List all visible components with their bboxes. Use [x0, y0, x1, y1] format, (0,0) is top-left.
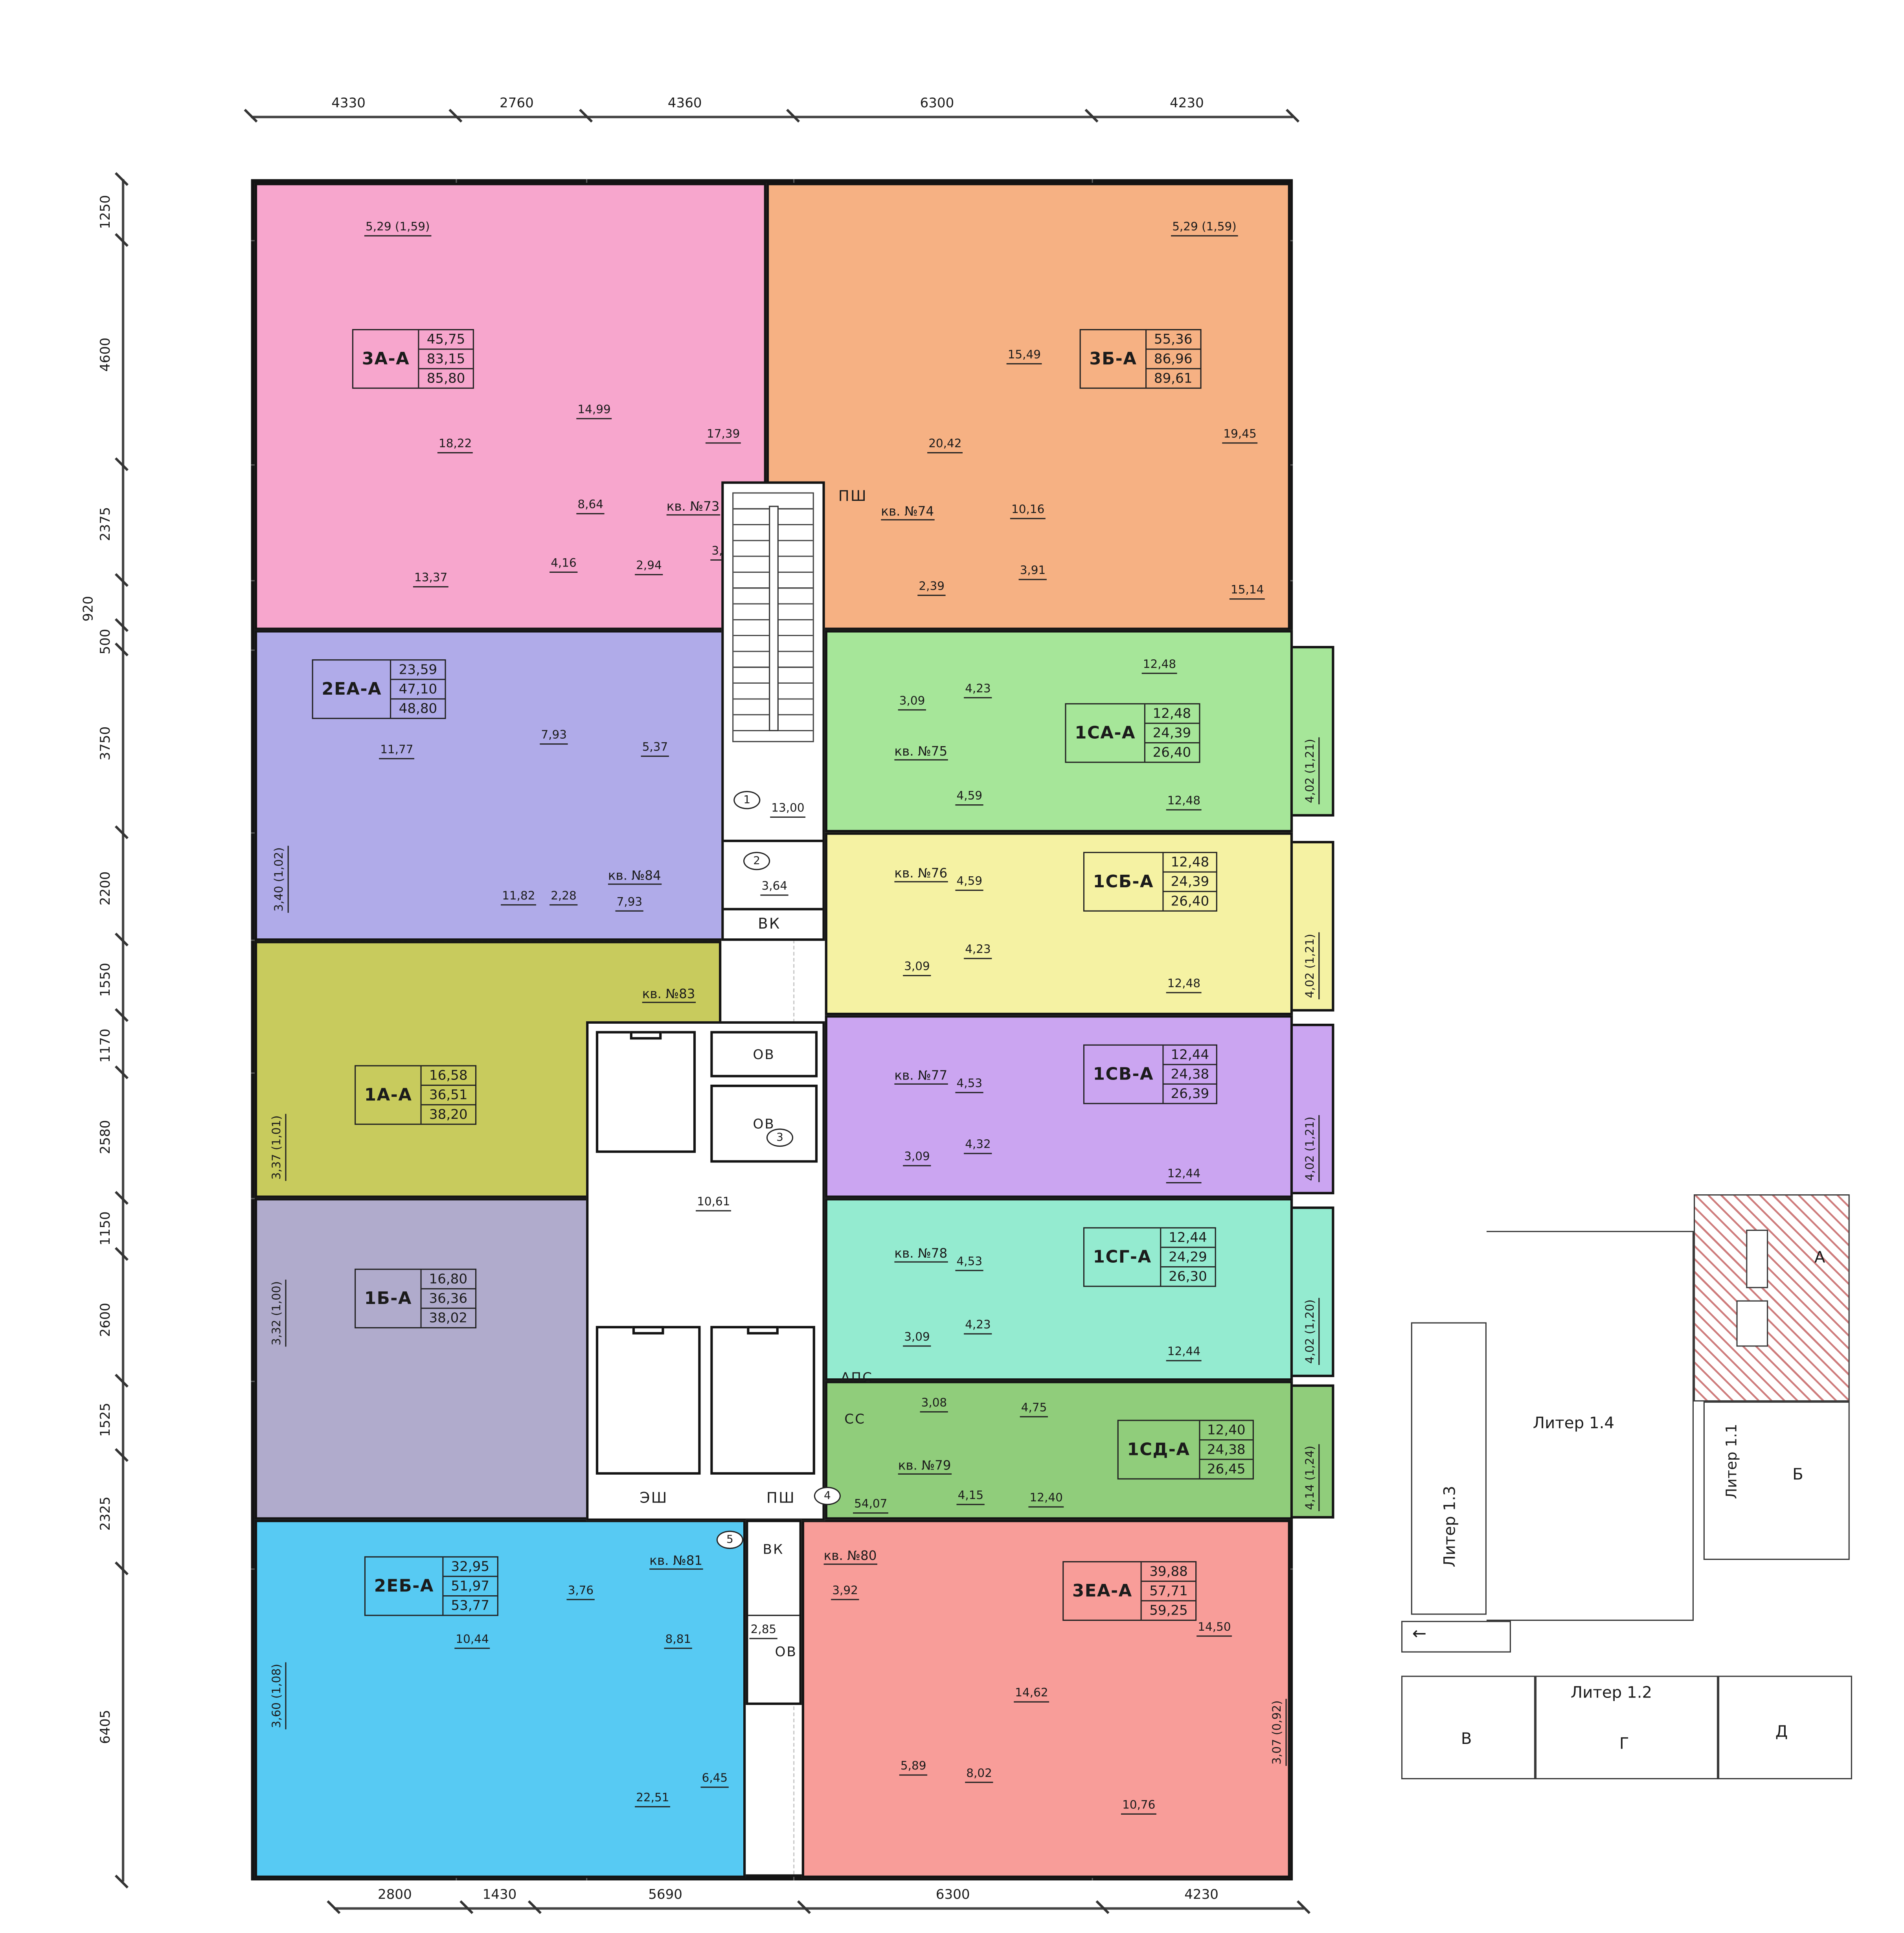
room-area: 3,09	[903, 1152, 931, 1166]
room-area: 14,62	[1014, 1688, 1049, 1703]
unit-number: кв. №78	[894, 1247, 947, 1262]
label-ss: СС	[844, 1411, 866, 1427]
site-plan-inset: ↑ Литер 1.3 Литер 1.4 А Б Литер 1.1 ← В …	[1377, 1194, 1858, 1810]
area-total: 47,10	[391, 679, 445, 699]
room-area: 15,14	[1230, 585, 1265, 600]
room-area: 7,93	[616, 897, 644, 912]
dim-bottom-5: 4230	[1184, 1887, 1218, 1902]
balcony-1sb: 4,02 (1,21)	[1293, 841, 1334, 1012]
site-block-a-core	[1746, 1230, 1768, 1288]
wall	[724, 908, 822, 910]
dim-bottom-3: 5690	[648, 1887, 682, 1902]
area-total: 24,38	[1163, 1064, 1217, 1083]
room-area: 12,48	[1166, 796, 1202, 810]
dim-left-5: 500	[97, 629, 113, 655]
apartment-tag: 1СБ-А 12,4824,3926,40	[1083, 852, 1218, 912]
room-area: 2,28	[550, 891, 578, 905]
stair-rail	[768, 506, 778, 732]
apartment-code: 1СД-А	[1119, 1421, 1198, 1479]
area-total: 24,29	[1162, 1247, 1215, 1266]
dim-left-9: 1170	[97, 1028, 113, 1063]
shaft-label-psh: ПШ	[766, 1489, 796, 1506]
site-liter-1-4: Литер 1.4	[1487, 1231, 1694, 1621]
area-total: 24,38	[1200, 1439, 1253, 1459]
room-area: 3,37 (1,01)	[272, 1114, 286, 1181]
room-number-badge: 4	[814, 1487, 841, 1505]
unit-number: кв. №73	[667, 500, 720, 515]
elevator-left	[596, 1326, 701, 1475]
area-living: 12,48	[1163, 853, 1217, 872]
room-area: 4,32	[964, 1140, 992, 1154]
dim-left-8: 1550	[97, 963, 113, 997]
floor-plan-sheet: 4330 2760 4360 6300 4230 1250 4600 2375 …	[0, 0, 1903, 1933]
room-number-badge: 3	[766, 1129, 793, 1147]
site-label-liter-1-1: Литер 1.1	[1723, 1424, 1740, 1499]
apartment-code: 3Б-А	[1081, 330, 1145, 388]
apartment-tag: 2ЕБ-А 32,9551,9753,77	[364, 1556, 498, 1616]
apartment-code: 1СБ-А	[1084, 853, 1162, 910]
room-area: 2,85	[750, 1624, 778, 1639]
apartment-tag: 1СВ-А 12,4424,3826,39	[1083, 1045, 1218, 1104]
site-label: А	[1814, 1249, 1825, 1268]
room-area: 10,61	[696, 1197, 731, 1211]
site-label: Литер 1.4	[1533, 1415, 1614, 1433]
room-area: 3,60 (1,08)	[272, 1663, 286, 1729]
room-area: 4,75	[1020, 1403, 1048, 1417]
area-full: 89,61	[1147, 368, 1200, 388]
room-area: 20,42	[927, 439, 963, 453]
dim-top-5: 4230	[1170, 95, 1204, 111]
room-area: 5,89	[899, 1761, 928, 1776]
balcony-1sa: 4,02 (1,21)	[1293, 646, 1334, 817]
apartment-code: 1СА-А	[1066, 704, 1144, 762]
dim-left-1: 1250	[97, 195, 113, 229]
elevator-door	[630, 1031, 662, 1040]
area-living: 12,40	[1200, 1421, 1253, 1440]
room-area: 5,37	[641, 742, 669, 757]
area-full: 48,80	[391, 698, 445, 718]
balcony-area: 4,02 (1,21)	[1305, 1115, 1320, 1182]
room-area: 8,81	[664, 1634, 693, 1649]
room-area: 19,45	[1222, 429, 1258, 443]
apartment-tag: 1А-А 16,5836,5138,20	[355, 1065, 476, 1125]
room-area: 12,48	[1166, 978, 1202, 993]
room-area: 11,82	[501, 891, 537, 905]
unit-number: кв. №74	[881, 504, 934, 520]
dim-left-7: 2200	[97, 872, 113, 906]
room-area: 2,39	[917, 581, 946, 596]
staircase	[732, 492, 814, 742]
area-full: 85,80	[419, 368, 472, 388]
apartment-tag: 3Б-А 55,3686,9689,61	[1080, 329, 1201, 389]
apartment-3a-a: 3А-А 45,7583,1585,80 5,29 (1,59) 18,22 1…	[255, 183, 766, 630]
apartment-3b-a: 3Б-А 55,3686,9689,61 5,29 (1,59) 15,49 2…	[766, 183, 1290, 630]
balcony-1sd: 4,14 (1,24)	[1293, 1385, 1334, 1519]
area-living: 16,58	[422, 1067, 475, 1085]
area-total: 24,39	[1145, 723, 1198, 742]
room-area: 13,00	[770, 803, 806, 818]
area-living: 45,75	[419, 330, 472, 349]
area-living: 39,88	[1142, 1562, 1195, 1581]
room-area: 5,29 (1,59)	[1171, 222, 1238, 236]
area-living: 55,36	[1147, 330, 1200, 349]
unit-number: кв. №80	[824, 1549, 877, 1565]
site-label-liter-1-2: Литер 1.2	[1571, 1684, 1652, 1703]
room-area: 8,02	[965, 1768, 993, 1783]
unit-number: кв. №77	[894, 1069, 947, 1085]
room-area: 3,09	[903, 1332, 931, 1346]
room-area: 3,76	[567, 1585, 595, 1600]
dim-left-6: 3750	[97, 726, 113, 761]
dim-line-top	[251, 116, 1293, 118]
arrow-left-icon: ←	[1412, 1624, 1426, 1644]
shaft-ov-2: ОВ	[710, 1085, 818, 1162]
site-entrance-block: ←	[1401, 1621, 1511, 1653]
dim-top-3: 4360	[668, 95, 702, 111]
apartment-code: 3А-А	[353, 330, 418, 388]
unit-number: кв. №75	[894, 745, 947, 760]
room-area: 3,64	[760, 881, 788, 896]
dim-left-12: 2600	[97, 1303, 113, 1337]
room-area: 5,29 (1,59)	[364, 222, 431, 236]
site-liter-1-3: Литер 1.3	[1411, 1322, 1487, 1615]
balcony-area: 4,14 (1,24)	[1305, 1444, 1320, 1511]
apartment-tag: 1СА-А 12,4824,3926,40	[1065, 703, 1200, 763]
elevator-small	[596, 1031, 696, 1153]
shaft-label-esh: ЭШ	[640, 1489, 668, 1506]
unit-number: кв. №76	[894, 866, 947, 882]
shaft-label-ov3: ОВ	[775, 1644, 797, 1660]
area-total: 83,15	[419, 349, 472, 368]
room-area: 13,37	[413, 573, 449, 587]
area-full: 26,45	[1200, 1459, 1253, 1479]
room-number-badge: 1	[733, 791, 760, 809]
room-area: 4,23	[964, 684, 992, 698]
area-living: 12,44	[1162, 1229, 1215, 1247]
room-area: 10,16	[1010, 504, 1046, 519]
room-area: 3,07 (0,92)	[1272, 1699, 1286, 1766]
room-area: 4,53	[955, 1079, 983, 1093]
room-area: 8,64	[576, 500, 605, 514]
dim-left-13: 1525	[97, 1403, 113, 1437]
elevator-door	[747, 1326, 779, 1335]
site-label: Д	[1775, 1723, 1788, 1742]
shaft-label-vk2: ВК	[763, 1542, 784, 1558]
shaft-label-vk: ВК	[758, 915, 781, 932]
balcony-1sg: 4,02 (1,20)	[1293, 1207, 1334, 1377]
room-area: 12,44	[1166, 1169, 1202, 1183]
dim-left-3: 2375	[97, 507, 113, 541]
dim-left-15: 6405	[97, 1710, 113, 1744]
room-area: 3,92	[831, 1585, 859, 1600]
service-shaft: ВК 2,85 ОВ	[746, 1520, 802, 1705]
room-area: 2,94	[635, 561, 663, 575]
apartment-code: 2ЕБ-А	[366, 1558, 443, 1615]
unit-number: кв. №79	[898, 1459, 951, 1475]
label-aps: АПС	[841, 1370, 873, 1385]
balcony-area: 4,02 (1,21)	[1305, 738, 1320, 804]
dim-bottom-4: 6300	[936, 1887, 970, 1902]
room-area: 14,99	[576, 405, 612, 419]
site-label: Г	[1619, 1735, 1629, 1754]
dim-left-14: 2325	[97, 1497, 113, 1531]
room-area: 4,15	[957, 1490, 985, 1505]
area-full: 26,30	[1162, 1266, 1215, 1286]
site-label: Литер 1.3	[1441, 1486, 1460, 1567]
elevator-door	[632, 1326, 664, 1335]
area-full: 26,40	[1145, 742, 1198, 762]
apartment-tag: 1СД-А 12,4024,3826,45	[1117, 1420, 1254, 1480]
unit-number: кв. №83	[642, 987, 695, 1003]
room-area: 6,45	[701, 1773, 729, 1788]
room-area: 3,32 (1,00)	[272, 1280, 286, 1347]
room-area: 17,39	[706, 429, 741, 443]
area-total: 86,96	[1147, 349, 1200, 368]
area-total: 51,97	[444, 1576, 497, 1595]
site-block-d: Д	[1718, 1676, 1852, 1780]
apartment-code: 1СГ-А	[1084, 1229, 1160, 1286]
area-total: 36,36	[422, 1288, 475, 1308]
area-full: 59,25	[1142, 1600, 1195, 1620]
site-label: Б	[1792, 1466, 1803, 1484]
apartment-tag: 1СГ-А 12,4424,2926,30	[1083, 1227, 1216, 1287]
apartment-code: 1СВ-А	[1084, 1046, 1162, 1103]
room-area: 14,50	[1196, 1622, 1232, 1637]
dim-line-bottom	[334, 1907, 1304, 1909]
room-area: 3,08	[920, 1398, 948, 1413]
unit-number: кв. №81	[649, 1554, 702, 1570]
area-living: 23,59	[391, 660, 445, 679]
shaft-ov-1: ОВ	[710, 1031, 818, 1078]
unit-number: кв. №84	[608, 869, 661, 885]
balcony-1sv: 4,02 (1,21)	[1293, 1024, 1334, 1194]
room-area: 4,23	[964, 1320, 992, 1334]
room-area: 3,09	[898, 696, 926, 710]
area-full: 26,40	[1163, 891, 1217, 910]
apartment-code: 2ЕА-А	[313, 660, 390, 718]
room-area: 12,40	[1028, 1493, 1064, 1508]
room-area: 54,07	[853, 1499, 889, 1514]
stair-core: 1 13,00 2 3,64 ВК	[721, 482, 825, 941]
apartment-code: 1Б-А	[356, 1270, 420, 1327]
dim-top-2: 2760	[500, 95, 534, 111]
room-area: 10,76	[1121, 1800, 1157, 1815]
apartment-tag: 3ЕА-А 39,8857,7159,25	[1062, 1561, 1196, 1621]
site-block-v: В	[1401, 1676, 1535, 1780]
apartment-2eb-a: 2ЕБ-А 32,9551,9753,77 3,60 (1,08) 3,76 1…	[255, 1520, 746, 1878]
area-full: 38,02	[422, 1308, 475, 1327]
apartment-1sa-a: 1СА-А 12,4824,3926,40 3,09 4,23 12,48 4,…	[825, 630, 1293, 833]
site-block-a-highlighted: А	[1694, 1194, 1850, 1401]
site-block-a-core	[1737, 1300, 1768, 1347]
room-area: 18,22	[437, 439, 473, 453]
room-number-badge: 5	[717, 1531, 743, 1549]
area-living: 12,48	[1145, 704, 1198, 723]
area-living: 12,44	[1163, 1046, 1217, 1064]
apartment-tag: 1Б-А 16,8036,3638,02	[355, 1269, 476, 1328]
area-full: 53,77	[444, 1595, 497, 1615]
dim-left-11: 1150	[97, 1211, 113, 1245]
apartment-tag: 2ЕА-А 23,5947,1048,80	[312, 659, 446, 719]
area-living: 32,95	[444, 1558, 497, 1576]
room-area: 3,09	[903, 962, 931, 976]
area-total: 36,51	[422, 1085, 475, 1104]
room-number-badge: 2	[743, 852, 770, 870]
apartment-1sv-a: 1СВ-А 12,4424,3826,39 4,53 3,09 4,32 12,…	[825, 1015, 1293, 1198]
apartment-3ea-a: 3ЕА-А 39,8857,7159,25 3,92 14,62 14,50 5…	[802, 1520, 1290, 1878]
elevator-right	[710, 1326, 815, 1475]
wall	[748, 1615, 799, 1616]
room-area: 22,51	[635, 1793, 671, 1807]
room-area: 4,16	[550, 558, 578, 573]
site-label: В	[1461, 1731, 1472, 1749]
wall	[724, 840, 822, 842]
apartment-code: 3ЕА-А	[1064, 1562, 1141, 1620]
dim-top-1: 4330	[331, 95, 366, 111]
area-total: 57,71	[1142, 1581, 1195, 1600]
dim-top-4: 6300	[920, 95, 954, 111]
room-area: 12,44	[1166, 1347, 1202, 1361]
area-living: 16,80	[422, 1270, 475, 1288]
room-area: 10,44	[454, 1634, 490, 1649]
room-area: 4,59	[955, 876, 983, 891]
room-area: 11,77	[379, 745, 415, 759]
shaft-label-psh-top: ПШ	[838, 487, 867, 504]
room-area: 15,49	[1007, 350, 1042, 364]
dim-bottom-2: 1430	[483, 1887, 517, 1902]
balcony-area: 4,02 (1,20)	[1305, 1298, 1320, 1365]
dim-left-2: 4600	[97, 338, 113, 372]
room-area: 4,53	[955, 1256, 983, 1271]
area-total: 24,39	[1163, 872, 1217, 891]
elevator-core: ОВ ОВ 3 10,61 ЭШ ПШ	[586, 1021, 825, 1521]
apartment-tag: 3А-А 45,7583,1585,80	[352, 329, 474, 389]
area-full: 26,39	[1163, 1083, 1217, 1103]
dim-left-4: 920	[81, 596, 96, 622]
dim-bottom-1: 2800	[378, 1887, 412, 1902]
room-area: 3,91	[1019, 565, 1047, 580]
room-area: 4,23	[964, 945, 992, 959]
apartment-1sg-a: 1СГ-А 12,4424,2926,30 4,53 3,09 4,23 12,…	[825, 1198, 1293, 1381]
apartment-1sd-a: 1СД-А 12,4024,3826,45 3,08 4,75 4,15 12,…	[825, 1381, 1293, 1519]
room-area: 3,40 (1,02)	[274, 846, 289, 913]
room-area: 12,48	[1142, 659, 1178, 674]
balcony-area: 4,02 (1,21)	[1305, 932, 1320, 999]
room-area: 4,59	[955, 791, 983, 806]
apartment-1sb-a: 1СБ-А 12,4824,3926,40 4,59 3,09 4,23 12,…	[825, 832, 1293, 1015]
dim-left-10: 2580	[97, 1120, 113, 1154]
area-full: 38,20	[422, 1104, 475, 1124]
dim-line-left	[122, 179, 124, 1882]
apartment-code: 1А-А	[356, 1067, 421, 1124]
room-area: 7,93	[540, 730, 568, 745]
site-block-g: Литер 1.2 Г	[1535, 1676, 1718, 1780]
